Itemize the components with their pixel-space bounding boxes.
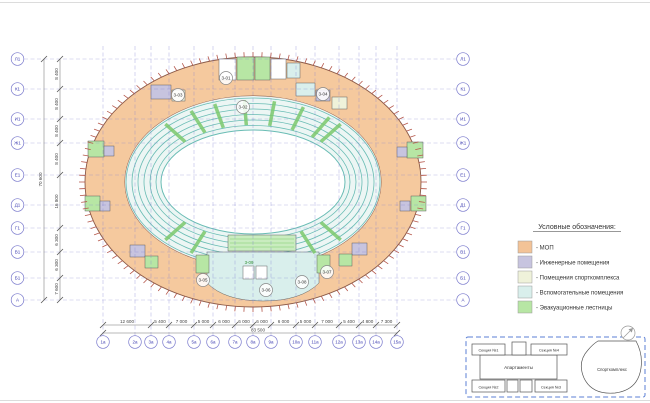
keyplan-section4-label: Секция №4: [539, 349, 559, 353]
legend-item: - Инженерные помещения: [518, 256, 609, 268]
legend-swatch-evac: [518, 301, 532, 313]
hatch-tick: [410, 135, 416, 137]
hatch-tick: [415, 214, 421, 215]
keyplan-section3-label: Секция №3: [541, 386, 561, 390]
keyplan-section2-label: Секция №2: [478, 386, 498, 390]
hatch-tick: [118, 100, 123, 103]
hatch-tick: [372, 270, 376, 274]
dim-text-left: 16 800: [54, 194, 59, 208]
hatch-tick: [389, 106, 394, 109]
legend-item: - Эвакуационные лестницы: [518, 301, 612, 313]
dim-text-bottom: 7 300: [381, 319, 393, 324]
room-evac-stairs: [339, 254, 352, 266]
room-number-label: 3-04: [318, 92, 328, 97]
legend-swatch-sport: [518, 271, 532, 283]
hatch-tick: [329, 66, 332, 70]
hatch-tick: [378, 95, 382, 98]
axis-label: И1: [15, 117, 21, 122]
room-number-label: 3-06: [261, 288, 271, 293]
hatch-tick: [406, 233, 411, 235]
axis-label: 10а: [292, 340, 300, 345]
hatch-tick: [389, 255, 394, 258]
hatch-tick: [406, 129, 411, 131]
hatch-tick: [130, 90, 134, 94]
room-number-label: 3-05: [198, 278, 208, 283]
room-evac-stairs: [237, 57, 254, 80]
hatch-tick: [365, 85, 369, 89]
hatch-tick: [420, 168, 426, 169]
dim-total-left: 70 600: [38, 172, 43, 186]
drawing-sheet: 8 4008 4008 4008 40016 8006 3006 3007 60…: [0, 0, 650, 403]
hatch-tick: [384, 100, 389, 103]
axis-label: Б1: [15, 276, 21, 281]
room-generic: [243, 266, 254, 279]
hatch-tick: [344, 73, 347, 77]
axis-label: 15а: [393, 340, 401, 345]
hatch-tick: [226, 305, 227, 310]
hatch-tick: [337, 290, 340, 294]
hatch-tick: [137, 275, 141, 279]
dim-total-bottom: 83 500: [251, 327, 265, 332]
hatch-tick: [372, 90, 376, 94]
dim-text-left: 6 300: [54, 259, 59, 271]
legend-label: - Вспомогательные помещения: [536, 291, 623, 297]
hatch-tick: [166, 69, 169, 73]
hatch-tick: [394, 111, 399, 114]
axis-label: К1: [460, 87, 466, 92]
room-engineering: [397, 147, 407, 157]
hatch-tick: [288, 55, 289, 60]
legend-swatch-mop: [518, 241, 532, 253]
dim-text-bottom: 6 000: [218, 319, 230, 324]
legend-title: Условные обозначения:: [538, 223, 616, 231]
axis-label: 3а: [148, 340, 154, 345]
keyplan-block: [512, 342, 526, 355]
hatch-tick: [419, 162, 425, 163]
dim-text-bottom: 7 000: [176, 319, 188, 324]
keyplan-sport-label: Спорткомплекс: [597, 367, 627, 372]
dim-text-bottom: 12 600: [120, 319, 134, 324]
axis-label: И1: [460, 117, 466, 122]
legend-label: - Эвакуационные лестницы: [536, 306, 612, 312]
hatch-tick: [403, 123, 408, 125]
axis-label: 11а: [311, 340, 319, 345]
room-sport: [332, 97, 347, 109]
axis-label: 9а: [268, 340, 274, 345]
tribune-sector-label: 3-09: [245, 260, 254, 265]
axis-label: Д1: [15, 203, 21, 208]
hatch-tick: [365, 275, 369, 279]
legend-item: - МОП: [518, 241, 554, 253]
hatch-tick: [217, 304, 218, 309]
room-number-label: 3-01: [221, 76, 231, 81]
axis-label: 12а: [335, 340, 343, 345]
hatch-tick: [191, 61, 193, 66]
legend-label: - Инженерные помещения: [536, 261, 609, 267]
hatch-tick: [217, 55, 218, 60]
axis-label: Л1: [460, 57, 466, 62]
hatch-tick: [279, 54, 280, 59]
axis-label: Г1: [15, 226, 20, 231]
room-number-label: 3-02: [238, 105, 248, 110]
hatch-tick: [130, 270, 134, 274]
hatch-tick: [191, 299, 193, 304]
dim-text-bottom: 5 400: [154, 319, 166, 324]
hatch-tick: [112, 106, 117, 109]
axis-label: Л1: [15, 57, 21, 62]
hatch-tick: [88, 221, 94, 223]
axis-label: Е1: [15, 173, 21, 178]
axis-label: Ж1: [460, 141, 467, 146]
hatch-tick: [118, 261, 123, 264]
room-engineering: [151, 85, 171, 99]
dim-text-bottom: 5 000: [198, 319, 210, 324]
axis-label: 7а: [232, 340, 238, 345]
axis-label: 6а: [210, 340, 216, 345]
axis-label: 1а: [100, 340, 106, 345]
hatch-tick: [403, 239, 408, 241]
hatch-tick: [143, 81, 147, 85]
axis-label: Б1: [460, 276, 466, 281]
room-evac-stairs: [145, 256, 158, 268]
hatch-tick: [143, 279, 147, 283]
hatch-tick: [80, 168, 86, 169]
hatch-tick: [329, 293, 332, 297]
hatch-tick: [305, 301, 307, 306]
hatch-tick: [288, 304, 289, 309]
room-number-label: 3-03: [173, 93, 183, 98]
axis-label: 4а: [166, 340, 172, 345]
hatch-tick: [98, 123, 103, 125]
building: [85, 57, 426, 307]
hatch-tick: [137, 85, 141, 89]
room-evac-stairs: [255, 57, 270, 80]
hatch-tick: [384, 261, 389, 264]
hatch-tick: [94, 233, 99, 235]
dim-text-bottom: 7 000: [321, 319, 333, 324]
dim-text-left: 8 400: [54, 98, 59, 110]
axis-label: К1: [15, 87, 21, 92]
dim-text-bottom: 6 000: [278, 319, 290, 324]
hatch-tick: [410, 227, 416, 229]
room-evac-stairs: [411, 196, 426, 211]
dim-text-left: 8 400: [54, 125, 59, 137]
hatch-tick: [398, 245, 403, 248]
hatch-tick: [98, 239, 103, 241]
axis-label: А: [16, 298, 19, 303]
hatch-tick: [91, 227, 97, 229]
hatch-tick: [271, 53, 272, 58]
hatch-tick: [208, 303, 210, 308]
dim-text-left: 8 400: [54, 153, 59, 165]
legend-swatch-engineering: [518, 256, 532, 268]
dim-text-left: 8 400: [54, 68, 59, 80]
keyplan-block: [507, 380, 518, 392]
hatch-tick: [107, 250, 112, 253]
legend-swatch-auxiliary: [518, 286, 532, 298]
room-engineering: [100, 201, 110, 211]
room-evac-stairs: [196, 255, 209, 273]
hatch-tick: [124, 266, 128, 269]
hatch-tick: [235, 53, 236, 58]
room-generic: [256, 266, 267, 279]
hatch-tick: [199, 301, 201, 306]
hatch-tick: [337, 69, 340, 73]
axis-label: А: [461, 298, 464, 303]
hatch-tick: [174, 66, 177, 70]
legend-label: - Помещения спорткомплекса: [536, 276, 620, 282]
hatch-tick: [321, 296, 323, 301]
hatch-tick: [226, 54, 227, 59]
hatch-tick: [158, 287, 161, 291]
axis-label: 8а: [250, 340, 256, 345]
room-engineering: [130, 245, 145, 257]
hatch-tick: [344, 287, 347, 291]
hatch-tick: [378, 266, 382, 269]
hatch-tick: [174, 293, 177, 297]
axis-label: Г1: [461, 226, 466, 231]
hatch-tick: [413, 221, 419, 223]
axis-label: Д1: [460, 203, 466, 208]
axis-label: В1: [460, 250, 466, 255]
legend-label: - МОП: [536, 246, 554, 252]
dim-text-left: 6 300: [54, 234, 59, 246]
hatch-tick: [296, 303, 298, 308]
hatch-tick: [182, 63, 184, 68]
room-engineering: [352, 243, 367, 255]
axis-label: 13а: [355, 340, 363, 345]
keyplan-section1-label: Секция №1: [478, 349, 498, 353]
hatch-tick: [394, 250, 399, 253]
room-auxiliary: [296, 83, 315, 96]
dim-text-bottom: 6 000: [238, 319, 250, 324]
hatch-tick: [166, 290, 169, 294]
hatch-tick: [321, 63, 323, 68]
dim-text-left: 7 600: [54, 283, 59, 295]
hatch-tick: [112, 255, 117, 258]
room-generic: [271, 59, 286, 79]
axis-label: Е1: [460, 173, 466, 178]
hatch-tick: [352, 283, 356, 287]
key-plan: Секция №1 Секция №4 Секция №2 Секция №3 …: [466, 326, 645, 397]
hatch-tick: [85, 214, 91, 215]
axis-label: 14а: [372, 340, 380, 345]
hatch-tick: [81, 162, 87, 163]
legend-item: - Помещения спорткомплекса: [518, 271, 620, 283]
dim-text-bottom: 4 800: [362, 319, 374, 324]
dim-text-bottom: 5 000: [300, 319, 312, 324]
axis-label: 2а: [132, 340, 138, 345]
hatch-tick: [279, 305, 280, 310]
axis-label: В1: [15, 250, 21, 255]
keyplan-block: [520, 380, 532, 392]
hatch-tick: [352, 77, 356, 81]
room-number-label: 3-08: [297, 280, 307, 285]
hatch-tick: [107, 111, 112, 114]
hatch-tick: [94, 129, 99, 131]
room-auxiliary: [287, 63, 300, 78]
room-evac-stairs: [85, 196, 100, 211]
axis-label: Ж1: [14, 141, 21, 146]
axis-label: 5а: [191, 340, 197, 345]
dim-text-bottom: 5 400: [343, 319, 355, 324]
legend: Условные обозначения: - МОП - Инженерные…: [518, 223, 623, 313]
room-engineering: [104, 146, 114, 156]
hatch-tick: [124, 95, 128, 98]
dim-text-bottom: 6 000: [256, 319, 268, 324]
room-engineering: [400, 201, 410, 211]
legend-item: - Вспомогательные помещения: [518, 286, 623, 298]
hatch-tick: [80, 195, 86, 196]
hatch-tick: [91, 135, 97, 137]
hatch-tick: [420, 195, 426, 196]
room-number-label: 3-07: [322, 270, 332, 275]
room-evac-stairs: [88, 141, 104, 157]
floor-plan-svg: 8 4008 4008 4008 40016 8006 3006 3007 60…: [0, 0, 650, 403]
hatch-tick: [158, 73, 161, 77]
keyplan-apartments-label: Апартаменты: [504, 365, 533, 370]
